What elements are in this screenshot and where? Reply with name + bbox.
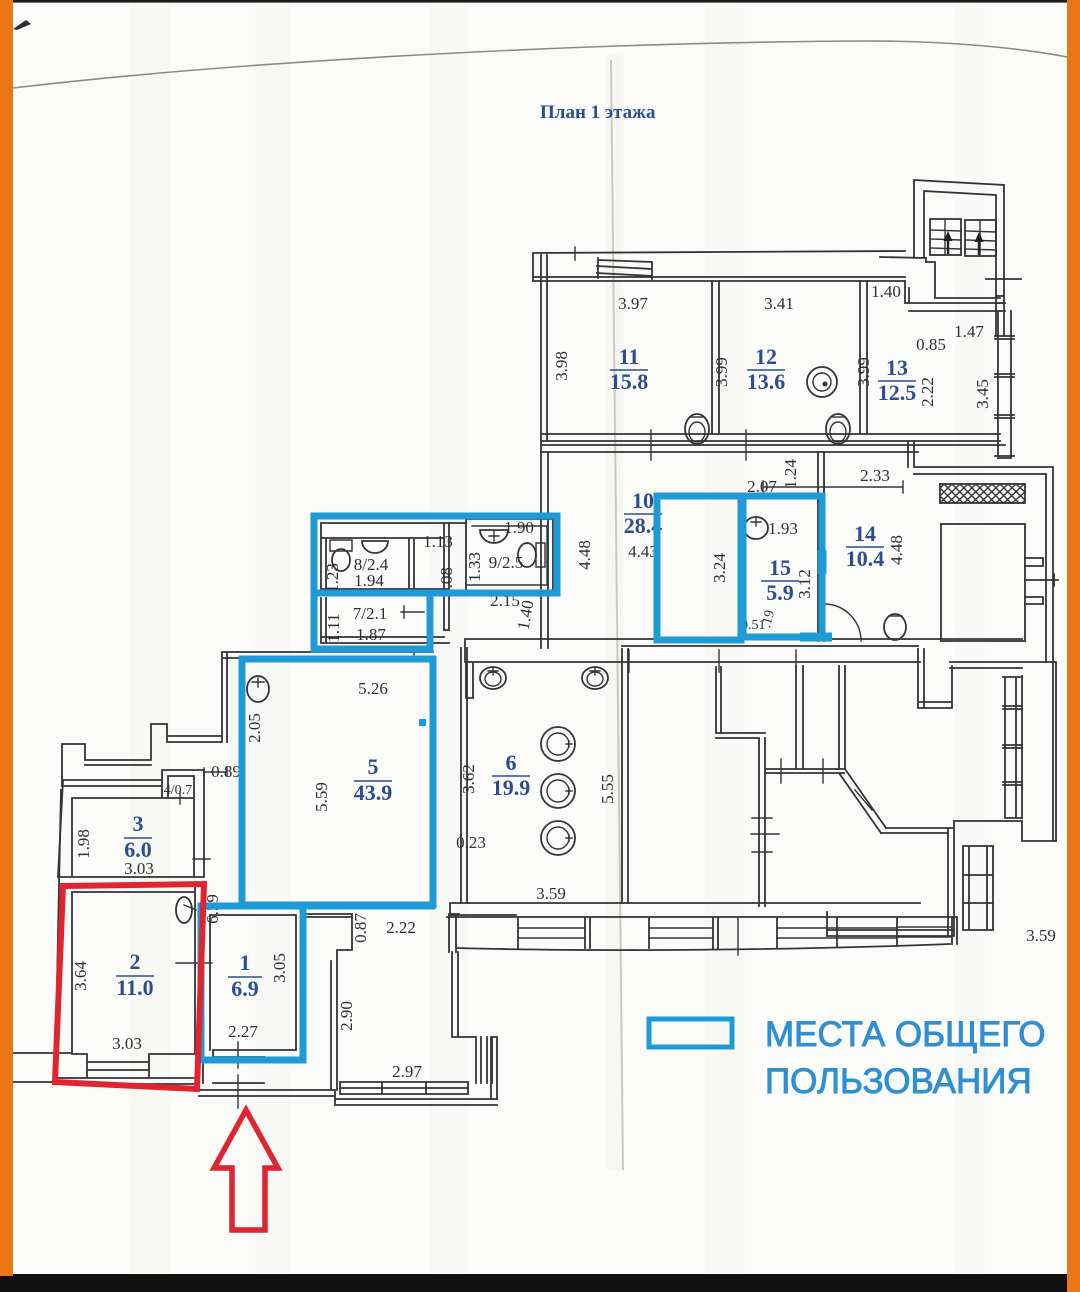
svg-text:1.24: 1.24 — [781, 459, 800, 489]
svg-text:1.90: 1.90 — [504, 518, 534, 537]
svg-text:1.47: 1.47 — [954, 322, 984, 341]
svg-text:План 1 этажа: План 1 этажа — [540, 102, 656, 123]
svg-text:0.87: 0.87 — [351, 913, 370, 943]
svg-text:3: 3 — [133, 811, 144, 836]
svg-text:4.48: 4.48 — [887, 535, 906, 565]
svg-text:7/2.1: 7/2.1 — [353, 604, 387, 623]
svg-text:13.6: 13.6 — [747, 369, 786, 394]
svg-text:15.8: 15.8 — [610, 369, 649, 394]
svg-text:4.43: 4.43 — [628, 542, 658, 561]
svg-text:6.9: 6.9 — [231, 976, 259, 1001]
svg-text:12.5: 12.5 — [878, 380, 917, 405]
svg-text:2.27: 2.27 — [228, 1022, 258, 1041]
svg-text:ПОЛЬЗОВАНИЯ: ПОЛЬЗОВАНИЯ — [765, 1062, 1032, 1101]
svg-text:3.12: 3.12 — [795, 569, 814, 599]
svg-text:5.55: 5.55 — [598, 774, 617, 804]
svg-text:5: 5 — [368, 754, 379, 779]
svg-text:3.41: 3.41 — [764, 294, 794, 313]
svg-text:1.40: 1.40 — [871, 282, 901, 301]
svg-text:6: 6 — [506, 750, 517, 775]
svg-text:3.59: 3.59 — [1026, 926, 1056, 945]
svg-text:2.97: 2.97 — [392, 1062, 422, 1081]
svg-text:1.11: 1.11 — [324, 613, 343, 642]
svg-text:3.59: 3.59 — [536, 884, 566, 903]
svg-text:9/2.5: 9/2.5 — [489, 553, 523, 572]
svg-text:1.98: 1.98 — [74, 829, 93, 859]
svg-text:3.03: 3.03 — [124, 859, 154, 878]
svg-text:2.22: 2.22 — [386, 918, 416, 937]
svg-text:1.87: 1.87 — [356, 625, 386, 644]
svg-text:14: 14 — [854, 521, 876, 546]
svg-text:1: 1 — [240, 950, 251, 975]
svg-text:11.0: 11.0 — [116, 975, 153, 1000]
svg-text:15: 15 — [769, 555, 791, 580]
svg-text:2.90: 2.90 — [337, 1001, 356, 1031]
svg-text:2: 2 — [130, 949, 141, 974]
svg-text:МЕСТА ОБЩЕГО: МЕСТА ОБЩЕГО — [765, 1015, 1045, 1054]
svg-text:3.97: 3.97 — [618, 294, 648, 313]
svg-text:2.05: 2.05 — [245, 713, 264, 743]
svg-text:1.13: 1.13 — [423, 532, 453, 551]
svg-text:13: 13 — [886, 355, 908, 380]
svg-text:3.45: 3.45 — [973, 379, 992, 409]
svg-text:0.89: 0.89 — [211, 762, 241, 781]
svg-text:5.59: 5.59 — [312, 782, 331, 812]
svg-text:3.03: 3.03 — [112, 1034, 142, 1053]
svg-text:1.33: 1.33 — [465, 552, 484, 582]
svg-text:3.98: 3.98 — [552, 351, 571, 381]
svg-text:3.99: 3.99 — [854, 357, 873, 387]
svg-text:4.48: 4.48 — [575, 540, 594, 570]
svg-text:5.9: 5.9 — [766, 580, 794, 605]
svg-text:3.99: 3.99 — [712, 357, 731, 387]
svg-text:11: 11 — [619, 344, 640, 369]
svg-text:3.64: 3.64 — [71, 961, 90, 991]
svg-text:10.4: 10.4 — [846, 546, 885, 571]
svg-text:3.24: 3.24 — [710, 553, 729, 583]
svg-text:43.9: 43.9 — [354, 780, 393, 805]
svg-text:10: 10 — [632, 488, 654, 513]
svg-text:2.33: 2.33 — [860, 466, 890, 485]
svg-text:0.85: 0.85 — [916, 335, 946, 354]
svg-text:3.05: 3.05 — [270, 953, 289, 983]
svg-text:2.22: 2.22 — [918, 377, 937, 407]
svg-text:1.23: 1.23 — [323, 563, 342, 593]
svg-text:5.26: 5.26 — [358, 679, 388, 698]
svg-text:1.94: 1.94 — [354, 571, 384, 590]
svg-text:19.9: 19.9 — [492, 775, 531, 800]
svg-text:3.62: 3.62 — [459, 764, 478, 794]
svg-text:4/0.7: 4/0.7 — [164, 783, 192, 798]
svg-text:12: 12 — [755, 344, 777, 369]
svg-text:1.93: 1.93 — [768, 519, 798, 538]
svg-text:0.23: 0.23 — [456, 833, 486, 852]
